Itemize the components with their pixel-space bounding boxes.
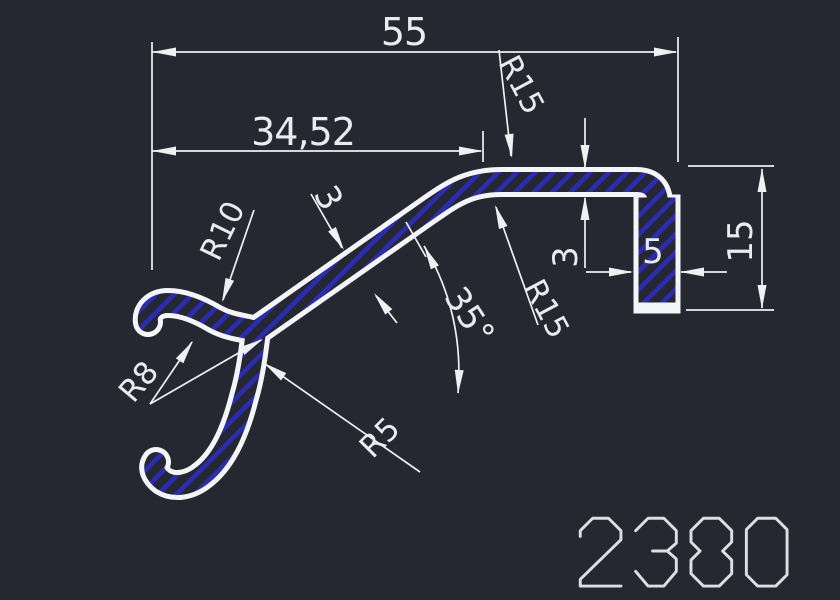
dim-label-thickness-top: 3	[546, 246, 586, 268]
cad-drawing: 55 34,52 R15 R15 3 3 5 15 35° R10 R8 R5	[0, 0, 840, 600]
dim-label-partial-width: 34,52	[251, 110, 355, 154]
cad-drawing-canvas: 55 34,52 R15 R15 3 3 5 15 35° R10 R8 R5	[0, 0, 840, 600]
drawing-background	[0, 0, 840, 600]
dim-label-leg-height: 15	[721, 219, 761, 262]
dim-label-leg-width: 5	[642, 232, 664, 272]
dim-label-overall-width: 55	[381, 10, 427, 54]
